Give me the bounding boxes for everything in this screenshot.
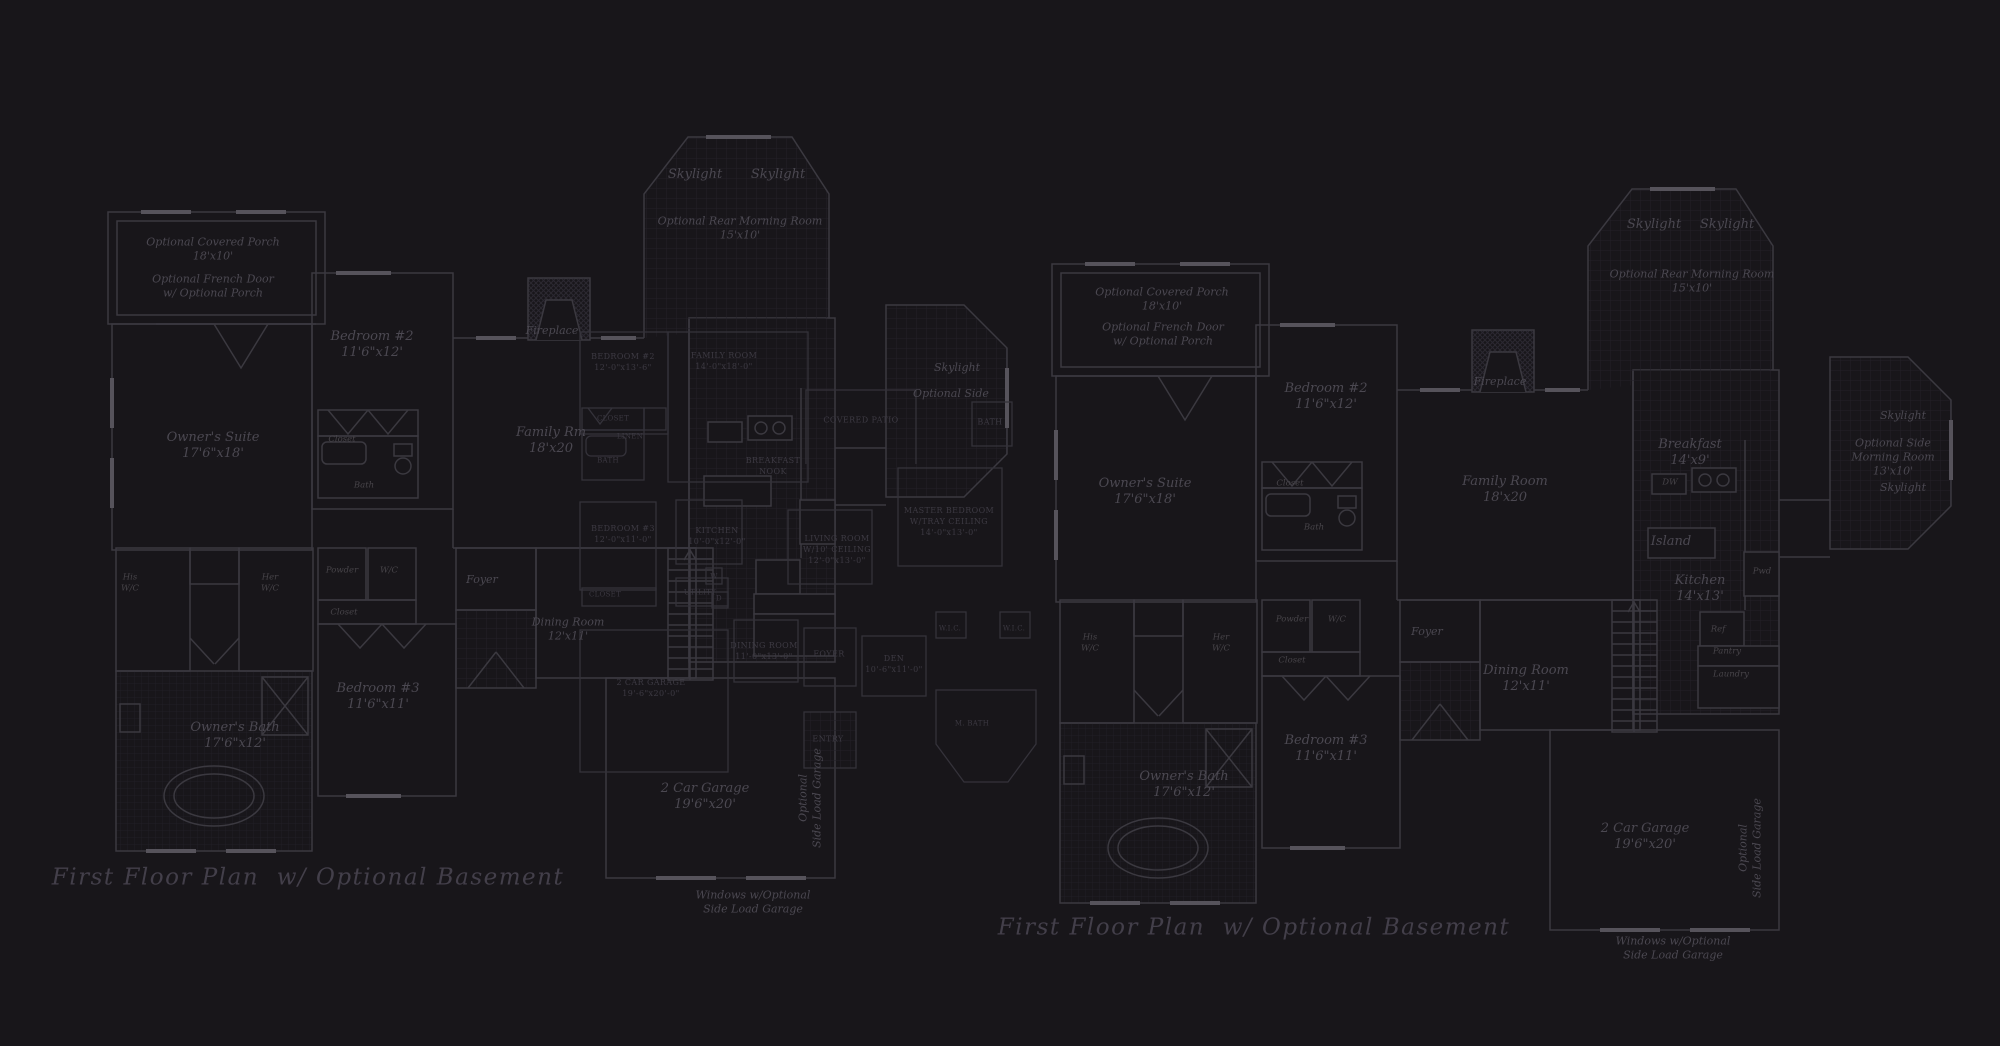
right-sheet-linework xyxy=(1052,189,1951,930)
left-sheet-linework xyxy=(108,137,1007,878)
plan-linework xyxy=(0,0,2000,1046)
floorplan-page: SkylightSkylightOptional Rear Morning Ro… xyxy=(0,0,2000,1046)
